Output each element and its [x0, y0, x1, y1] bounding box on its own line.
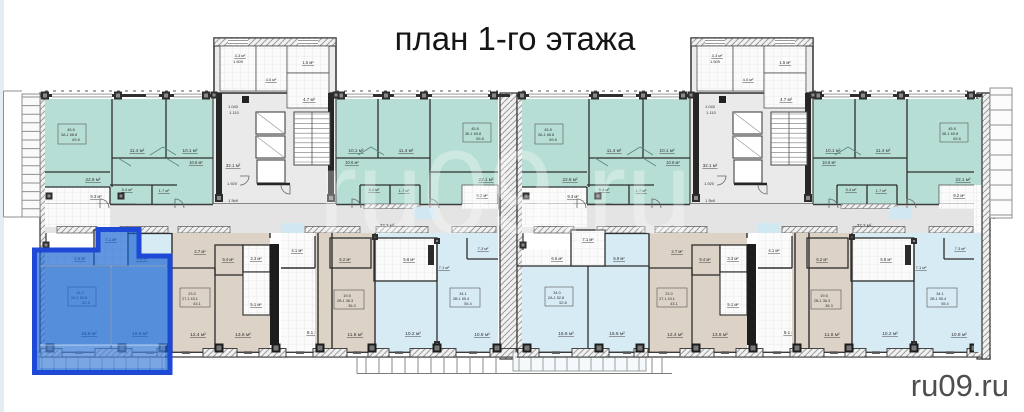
- svg-text:9.3 м²: 9.3 м²: [90, 194, 102, 199]
- svg-text:55.4: 55.4: [464, 302, 471, 306]
- svg-text:1.110: 1.110: [229, 110, 239, 115]
- svg-text:2.7 м²: 2.7 м²: [194, 249, 206, 254]
- svg-text:1.040: 1.040: [228, 104, 239, 109]
- svg-text:32.1 м²: 32.1 м²: [226, 163, 241, 168]
- svg-text:19.5: 19.5: [343, 294, 350, 298]
- svg-text:4.0 м²: 4.0 м²: [266, 77, 277, 82]
- svg-text:5.4 м²: 5.4 м²: [122, 187, 133, 192]
- svg-text:7.1 м²: 7.1 м²: [439, 265, 450, 270]
- svg-text:3А.1 68.8: 3А.1 68.8: [61, 133, 77, 137]
- svg-text:23.0: 23.0: [188, 292, 195, 296]
- svg-text:4.1 м²: 4.1 м²: [291, 248, 303, 253]
- svg-text:69.8: 69.8: [72, 138, 79, 142]
- svg-text:5.1 м²: 5.1 м²: [250, 302, 262, 307]
- svg-text:45.8: 45.8: [67, 128, 74, 132]
- svg-text:ru09.ru: ru09.ru: [911, 368, 1009, 403]
- svg-text:10.6 м²: 10.6 м²: [189, 160, 203, 165]
- svg-text:9.4 м²: 9.4 м²: [222, 257, 234, 262]
- svg-text:ru09.ru: ru09.ru: [318, 127, 692, 259]
- svg-text:1.7 м²: 1.7 м²: [159, 188, 170, 193]
- svg-text:1 №9: 1 №9: [228, 198, 239, 203]
- svg-text:4.7 м²: 4.7 м²: [303, 97, 316, 102]
- svg-text:1.509: 1.509: [233, 59, 244, 64]
- svg-text:3.3 м²: 3.3 м²: [235, 53, 246, 58]
- svg-text:2В.1 36.3: 2В.1 36.3: [337, 299, 353, 303]
- svg-text:2В.1 55.4: 2В.1 55.4: [453, 297, 469, 301]
- svg-text:36.3: 36.3: [348, 304, 355, 308]
- svg-text:43.1: 43.1: [193, 302, 200, 306]
- svg-text:3.3 м²: 3.3 м²: [250, 256, 262, 261]
- svg-text:1.920: 1.920: [227, 181, 238, 186]
- svg-text:10.1 м²: 10.1 м²: [183, 148, 198, 153]
- svg-text:22.9 м²: 22.9 м²: [86, 177, 101, 182]
- svg-text:27.1 43.1: 27.1 43.1: [182, 297, 198, 301]
- svg-text:1.5 м²: 1.5 м²: [302, 60, 314, 65]
- svg-text:план 1-го этажа: план 1-го этажа: [395, 20, 636, 57]
- svg-text:11.4 м²: 11.4 м²: [130, 148, 145, 153]
- svg-text:34.1: 34.1: [459, 292, 466, 296]
